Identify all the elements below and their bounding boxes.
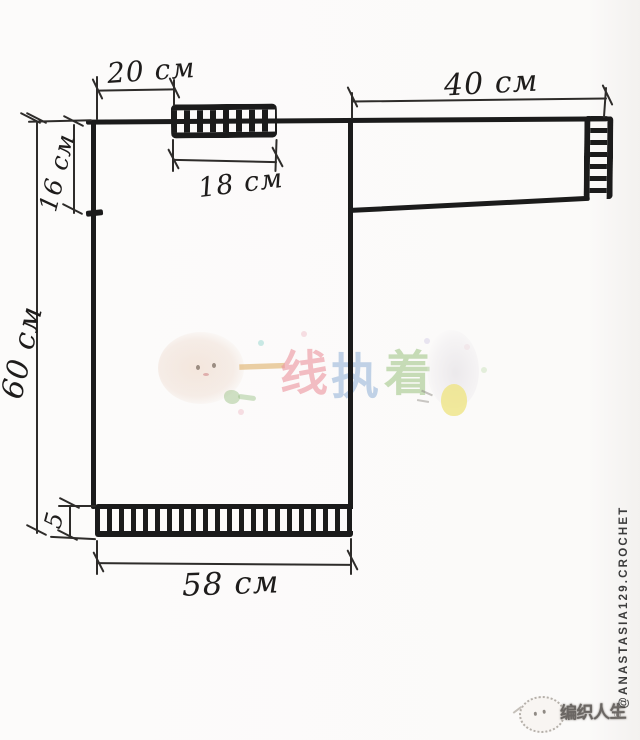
confetti-dot — [481, 367, 487, 373]
watermark-char-xian: 线 — [280, 350, 328, 398]
sweater-schematic-page: 一 线 执 着 20 см 18 см 40 см — [0, 0, 640, 740]
registered-trademark: ® — [613, 711, 622, 721]
dim-58-label: 58 см — [181, 564, 280, 603]
logo-sheep-eye — [534, 712, 537, 716]
dim-5-label: 5 — [39, 509, 70, 532]
shoulder-and-sleeve-top-line — [86, 116, 608, 124]
confetti-dot — [301, 331, 307, 337]
watermark-leaf-doodle — [224, 386, 258, 408]
dim-18-label: 18 см — [196, 163, 285, 204]
logo-sheep-scribble — [513, 706, 522, 714]
sheep-eye-left — [196, 365, 200, 370]
sheep-nose — [203, 373, 209, 376]
dim-5-line — [69, 506, 71, 538]
credit-vertical-text: @ANASTASIA129.CROCHET — [618, 506, 630, 709]
dim-20-ext-left — [96, 76, 98, 120]
body-right-edge — [348, 121, 353, 509]
dim-20-label: 20 см — [106, 51, 197, 90]
sheep-eye-right — [212, 363, 216, 368]
dim-5-tick-bottom — [57, 529, 78, 541]
collar-ribbing-band — [171, 104, 277, 139]
hem-ribbing-band — [95, 504, 353, 537]
confetti-dot — [424, 338, 430, 344]
watermark-bunny-doodle — [427, 330, 479, 408]
confetti-dot — [238, 409, 244, 415]
body-left-edge — [91, 121, 96, 509]
logo-sheep-eye — [542, 710, 545, 714]
dim-40-label: 40 см — [443, 64, 539, 104]
armhole-notch-mark — [86, 209, 104, 217]
watermark-char-zhi: 执 — [331, 353, 379, 401]
chick-doodle — [441, 384, 467, 416]
dim-58-tick-right — [346, 549, 358, 570]
dim-60-label: 60 см — [0, 307, 49, 403]
sleeve-cuff-ribbing-band — [584, 116, 614, 199]
leaf-stem — [238, 394, 257, 401]
dim-18-line — [173, 159, 277, 163]
sleeve-bottom-edge — [349, 196, 590, 213]
